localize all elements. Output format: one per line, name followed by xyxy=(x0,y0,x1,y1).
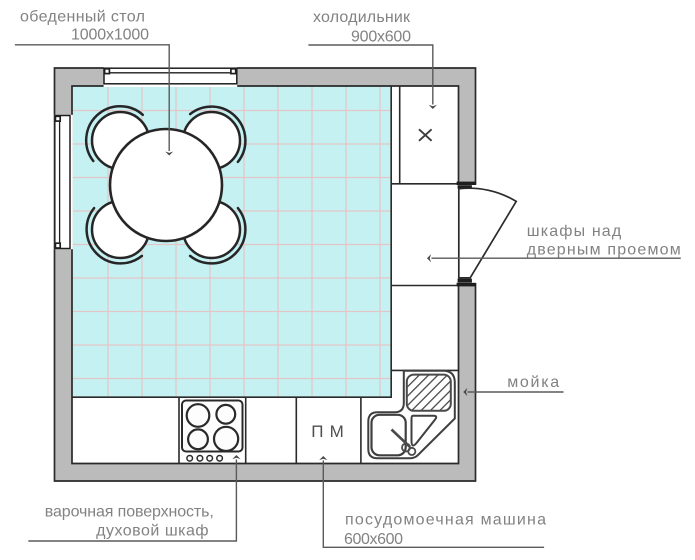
svg-text:посудомоечная машина: посудомоечная машина xyxy=(345,512,546,529)
svg-text:шкафы над: шкафы над xyxy=(527,223,622,240)
svg-text:холодильник: холодильник xyxy=(313,9,411,26)
svg-text:600х600: 600х600 xyxy=(344,531,403,548)
svg-text:варочная поверхность,: варочная поверхность, xyxy=(45,504,214,521)
svg-text:900х600: 900х600 xyxy=(351,29,411,46)
svg-text:духовой шкаф: духовой шкаф xyxy=(96,523,209,540)
svg-text:дверным проемом: дверным проемом xyxy=(527,241,681,258)
svg-text:мойка: мойка xyxy=(507,374,559,391)
svg-text:обеденный стол: обеденный стол xyxy=(20,9,145,26)
svg-text:1000х1000: 1000х1000 xyxy=(71,27,149,44)
